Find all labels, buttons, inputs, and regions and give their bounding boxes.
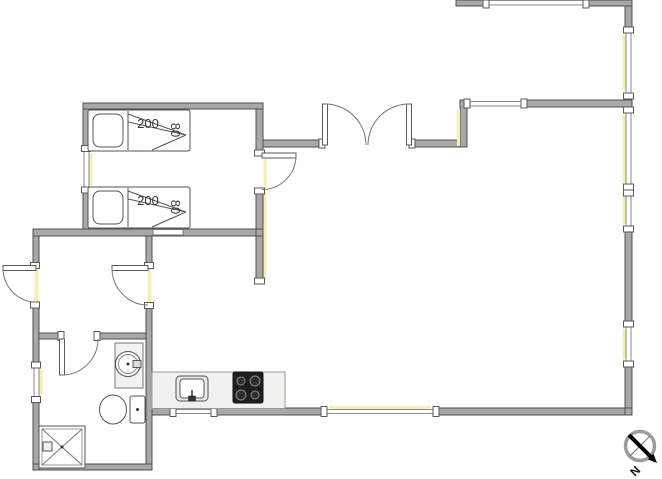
- kitchen-sink-tap: [189, 396, 196, 401]
- bed-1: 200 80: [88, 110, 190, 151]
- kitchen-counter: [152, 372, 285, 409]
- bedroom-door-swing: [262, 156, 296, 190]
- wall-opening: [153, 230, 183, 236]
- burner: [250, 376, 260, 386]
- burner: [237, 377, 245, 385]
- bedroom-door-leaf: [262, 153, 296, 158]
- compass-north-label: N: [627, 463, 643, 479]
- bed-2: 200 80: [88, 187, 190, 228]
- hall-door-swing: [112, 268, 148, 305]
- pillow: [93, 114, 123, 147]
- entry-door-swing: [3, 268, 36, 302]
- patio-door-right-leaf: [407, 104, 412, 145]
- bathroom-door-leaf: [60, 339, 65, 375]
- patio-door-left-swing: [325, 104, 366, 145]
- bedroom-door: [262, 153, 296, 190]
- burner: [251, 391, 259, 399]
- burner: [236, 390, 246, 400]
- shower-head: [43, 442, 52, 451]
- bathroom-door-swing: [62, 339, 98, 375]
- bathroom-door: [60, 339, 99, 375]
- floor-plan-drawing: 200 80 200 80: [0, 0, 662, 479]
- patio-door-right-swing: [368, 104, 409, 145]
- bed-length-label: 200: [137, 116, 159, 131]
- entry-door: [3, 266, 36, 303]
- washbasin: [115, 343, 143, 388]
- shower-drain: [61, 446, 64, 449]
- bed-width-label: 80: [168, 200, 183, 214]
- toilet-bowl: [100, 395, 127, 424]
- hall-door-leaf: [112, 266, 148, 271]
- toilet-flush-dot: [136, 408, 139, 411]
- patio-door-left-leaf: [323, 104, 328, 145]
- entry-door-leaf: [3, 266, 36, 271]
- floor-plan-canvas: 200 80 200 80: [0, 0, 662, 479]
- compass-rose: N: [626, 432, 658, 479]
- kitchen: [152, 372, 285, 409]
- shower: [39, 426, 85, 468]
- pillow: [93, 191, 123, 224]
- bed-width-label: 80: [168, 123, 183, 137]
- double-patio-door: [323, 104, 412, 145]
- stove: [233, 372, 263, 403]
- washbasin-drain: [127, 363, 130, 366]
- hall-door: [112, 266, 148, 306]
- toilet: [100, 395, 146, 424]
- bed-length-label: 200: [137, 193, 159, 208]
- washbasin-tap: [133, 361, 141, 368]
